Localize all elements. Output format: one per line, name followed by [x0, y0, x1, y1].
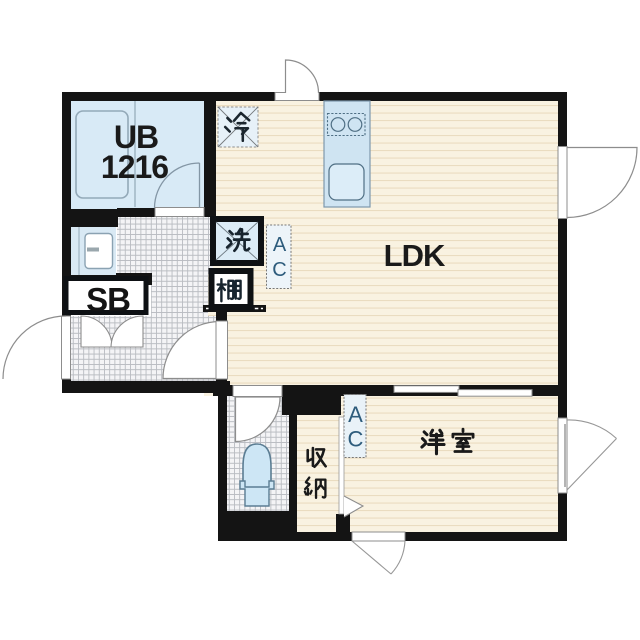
- svg-text:SB: SB: [86, 281, 130, 318]
- svg-text:A: A: [273, 234, 287, 256]
- svg-text:LDK: LDK: [384, 238, 446, 273]
- svg-text:C: C: [272, 259, 286, 281]
- svg-text:C: C: [348, 427, 364, 452]
- svg-text:1216: 1216: [101, 149, 168, 185]
- svg-text:A: A: [348, 402, 363, 427]
